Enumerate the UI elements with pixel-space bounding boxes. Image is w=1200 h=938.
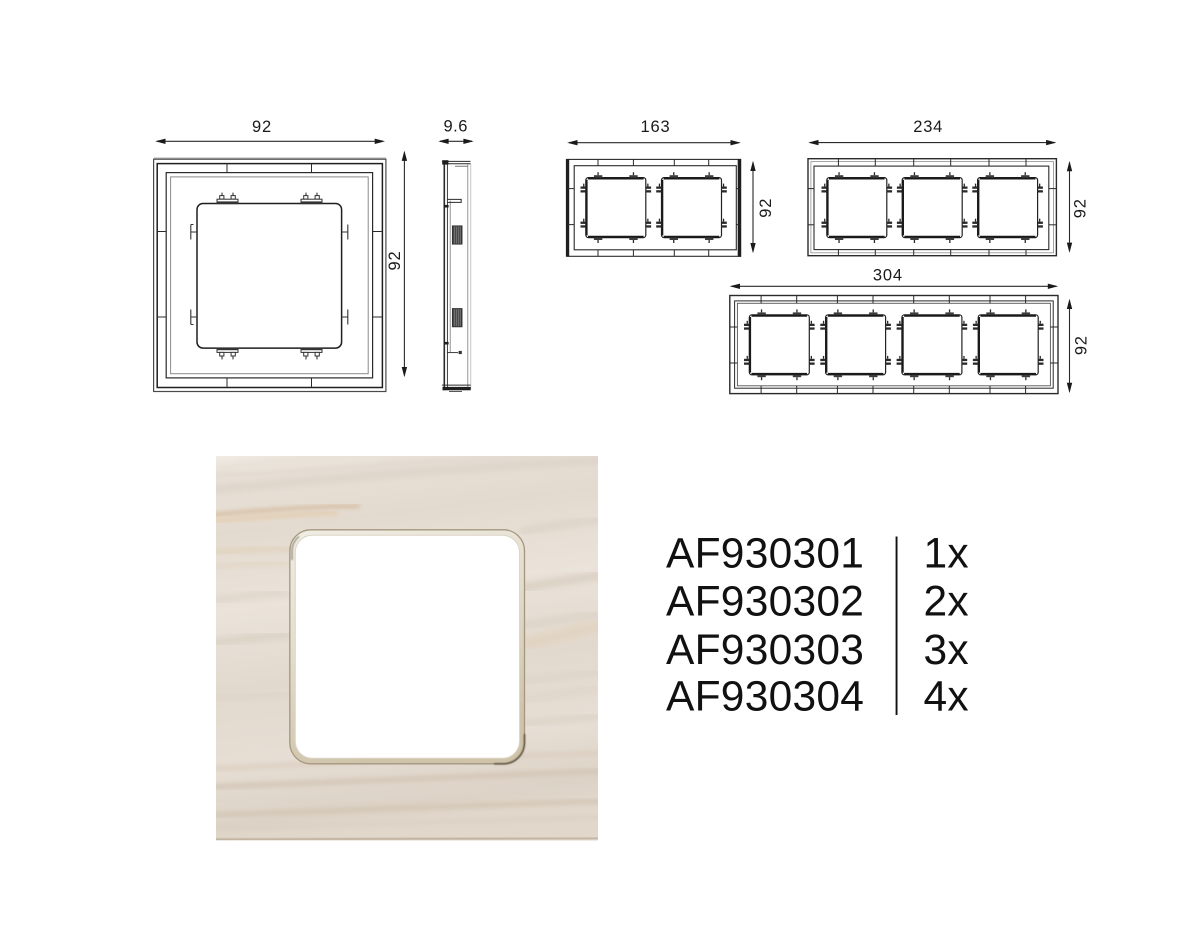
svg-text:92: 92 [1072, 198, 1090, 218]
svg-text:AF930301: AF930301 [666, 531, 864, 578]
svg-text:92: 92 [1073, 335, 1091, 355]
svg-text:2x: 2x [924, 579, 969, 626]
svg-text:9.6: 9.6 [443, 118, 467, 136]
svg-text:1x: 1x [924, 531, 969, 578]
svg-text:AF930303: AF930303 [666, 627, 864, 674]
svg-text:92: 92 [757, 198, 775, 218]
svg-text:AF930302: AF930302 [666, 579, 864, 626]
svg-text:92: 92 [252, 118, 272, 136]
svg-text:163: 163 [641, 118, 671, 136]
svg-text:AF930304: AF930304 [666, 674, 864, 721]
svg-text:3x: 3x [924, 627, 969, 674]
svg-text:304: 304 [873, 267, 903, 285]
svg-text:4x: 4x [924, 674, 969, 721]
svg-text:92: 92 [386, 251, 404, 271]
svg-text:234: 234 [913, 118, 943, 136]
